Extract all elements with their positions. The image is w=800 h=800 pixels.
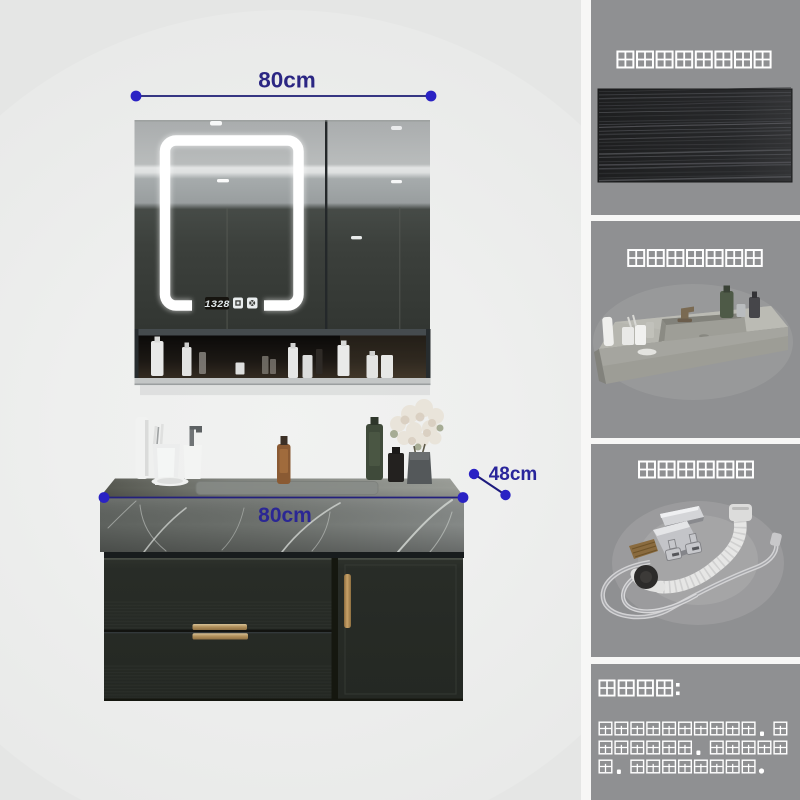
svg-text:80cm: 80cm [258, 68, 316, 93]
svg-text:1328: 1328 [204, 299, 230, 311]
svg-text:48cm: 48cm [489, 464, 538, 485]
svg-text:80cm: 80cm [258, 504, 312, 527]
